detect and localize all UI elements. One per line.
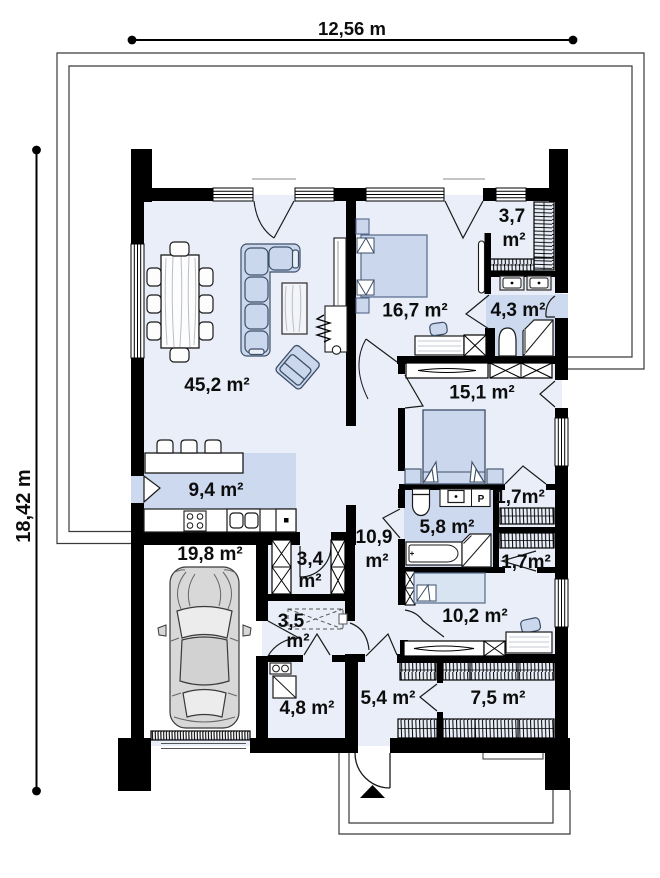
- svg-text:7,5 m²: 7,5 m²: [471, 688, 526, 709]
- svg-text:10,9: 10,9: [356, 527, 393, 548]
- svg-text:4,3 m²: 4,3 m²: [491, 300, 546, 321]
- svg-text:3,5: 3,5: [278, 611, 305, 632]
- svg-text:1,7m²: 1,7m²: [501, 552, 551, 573]
- svg-text:19,8 m²: 19,8 m²: [177, 544, 242, 565]
- svg-text:3,4: 3,4: [297, 549, 324, 570]
- svg-text:3,7: 3,7: [499, 206, 525, 227]
- svg-text:m²: m²: [502, 230, 525, 251]
- svg-text:16,7 m²: 16,7 m²: [382, 301, 447, 322]
- svg-text:4,8 m²: 4,8 m²: [280, 698, 335, 719]
- svg-text:18,42 m: 18,42 m: [13, 469, 35, 542]
- svg-text:m²: m²: [298, 571, 321, 592]
- svg-text:45,2 m²: 45,2 m²: [184, 375, 249, 396]
- svg-text:12,56 m: 12,56 m: [318, 18, 386, 39]
- svg-text:9,4 m²: 9,4 m²: [189, 480, 244, 501]
- svg-text:10,2 m²: 10,2 m²: [442, 606, 507, 627]
- svg-text:m²: m²: [286, 631, 309, 652]
- svg-text:m²: m²: [365, 551, 388, 572]
- svg-text:1,7m²: 1,7m²: [495, 487, 545, 508]
- svg-text:5,4 m²: 5,4 m²: [361, 688, 416, 709]
- svg-text:5,8 m²: 5,8 m²: [420, 517, 475, 538]
- svg-text:15,1 m²: 15,1 m²: [449, 383, 514, 404]
- svg-text:P: P: [478, 494, 485, 505]
